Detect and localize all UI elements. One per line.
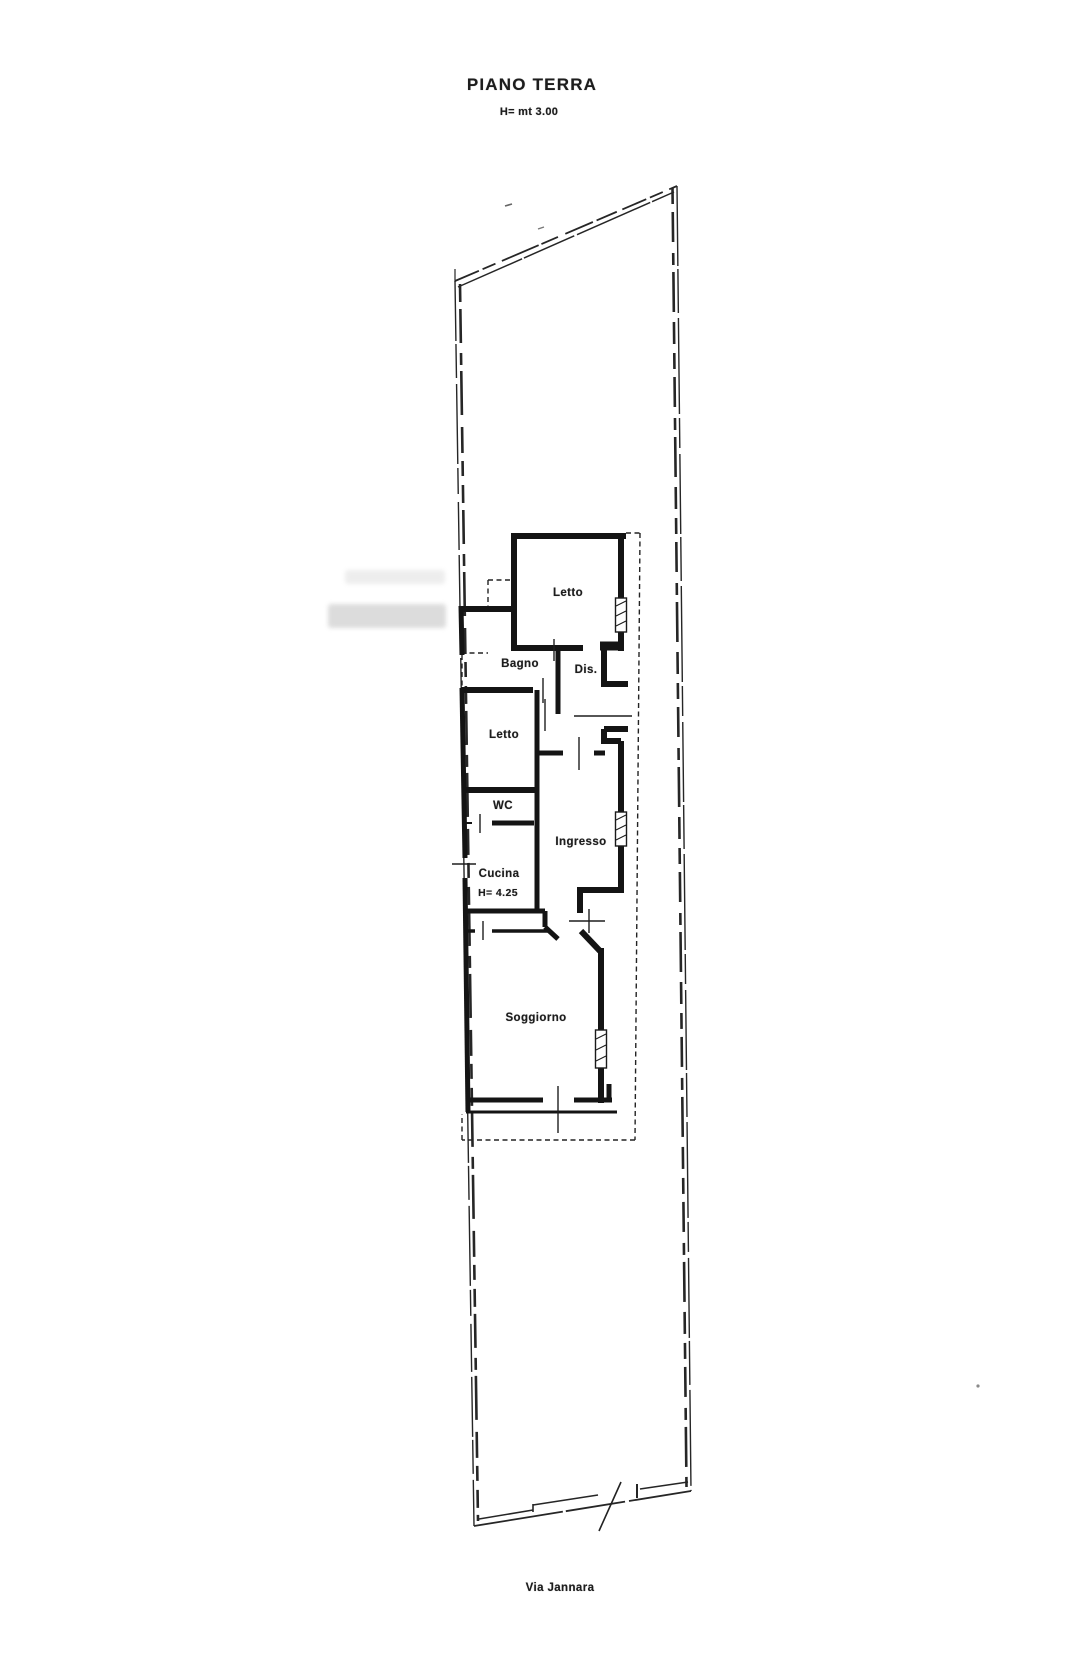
room-label-letto-1: Letto: [553, 587, 583, 599]
room-label-wc: WC: [493, 800, 513, 812]
street-label: Via Jannara: [526, 1582, 595, 1594]
plan-height-note: H= mt 3.00: [500, 106, 558, 118]
room-label-dis: Dis.: [575, 664, 598, 676]
plan-title: PIANO TERRA: [467, 75, 597, 95]
apartment-walls: [461, 533, 628, 1112]
room-label-ingresso: Ingresso: [555, 836, 606, 848]
room-label-soggiorno: Soggiorno: [505, 1012, 566, 1024]
floor-plan-sheet: PIANO TERRA H= mt 3.00 Letto Bagno Dis. …: [0, 0, 1088, 1678]
scan-artifacts: [505, 204, 980, 1388]
room-height-note-cucina: H= 4.25: [478, 887, 518, 899]
gate-mark: [599, 1482, 621, 1531]
floor-plan-drawing: [0, 0, 1088, 1678]
room-label-bagno: Bagno: [501, 658, 539, 670]
parcel-boundary: [455, 186, 691, 1526]
room-label-cucina: Cucina: [479, 868, 520, 880]
dashed-overhang-line: [461, 533, 641, 1140]
room-label-letto-2: Letto: [489, 729, 519, 741]
